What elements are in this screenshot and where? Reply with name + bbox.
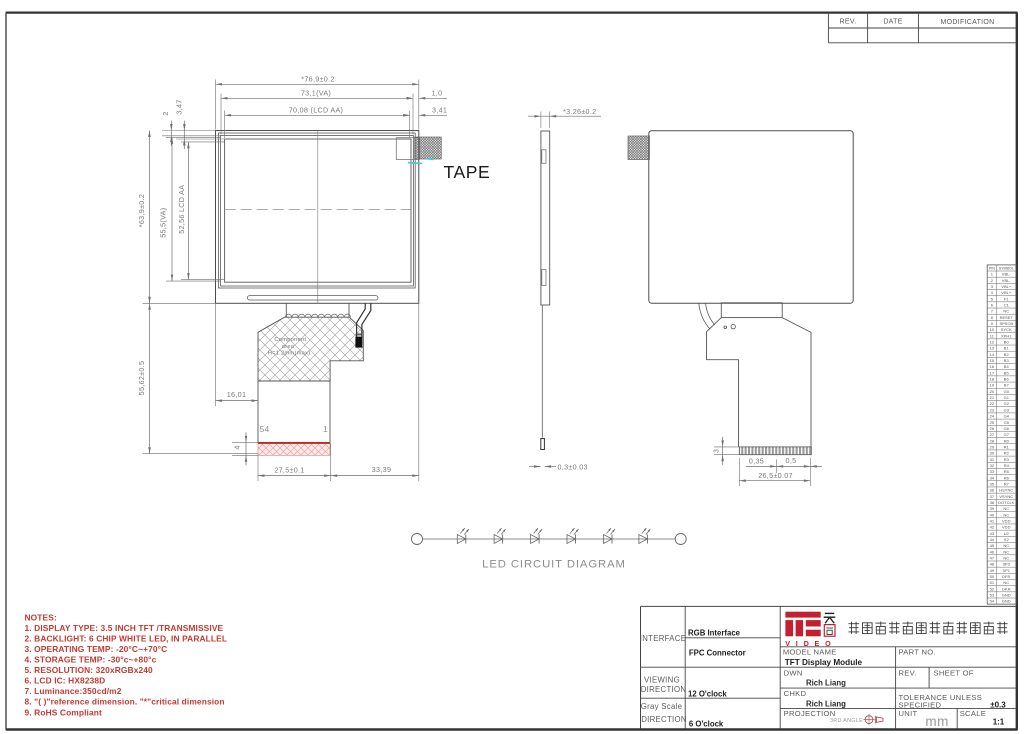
svg-text:11: 11	[990, 333, 995, 338]
svg-text:10: 10	[990, 327, 995, 332]
svg-text:NC: NC	[1003, 309, 1009, 314]
svg-text:DIRECTION: DIRECTION	[641, 685, 687, 694]
svg-text:TFT Display Module: TFT Display Module	[785, 658, 863, 667]
svg-text:NOTES:: NOTES:	[25, 612, 57, 622]
svg-text:SYMBOL: SYMBOL	[999, 266, 1014, 270]
svg-text:H=1.2mm(max): H=1.2mm(max)	[268, 350, 311, 356]
svg-text:B4: B4	[1004, 364, 1010, 369]
svg-text:38: 38	[990, 500, 995, 505]
svg-text:NC: NC	[1003, 555, 1009, 560]
svg-text:VBL-: VBL-	[1002, 272, 1012, 277]
svg-text:16,01: 16,01	[227, 390, 247, 399]
svg-text:23: 23	[990, 407, 995, 412]
svg-text:B5: B5	[1004, 370, 1010, 375]
svg-text:R7: R7	[1004, 481, 1010, 486]
svg-text:33: 33	[990, 469, 995, 474]
svg-text:16: 16	[990, 364, 995, 369]
svg-text:27: 27	[990, 432, 995, 437]
svg-text:B0: B0	[1004, 340, 1010, 345]
svg-text:0,5: 0,5	[786, 456, 797, 465]
svg-text:*76,9±0.2: *76,9±0.2	[301, 75, 334, 84]
svg-text:R5: R5	[1004, 469, 1010, 474]
svg-text:Gray Scale: Gray Scale	[641, 702, 683, 711]
svg-text:52: 52	[990, 586, 995, 591]
svg-text:SHEET OF: SHEET OF	[934, 669, 974, 678]
svg-text:G0: G0	[1004, 389, 1010, 394]
svg-text:3: 3	[711, 449, 720, 453]
svg-text:9. RoHS Compliant: 9. RoHS Compliant	[25, 707, 103, 717]
svg-text:6 O'clock: 6 O'clock	[689, 720, 724, 729]
svg-text:G4: G4	[1004, 414, 1010, 419]
svg-text:40: 40	[990, 512, 995, 517]
svg-text:2. BACKLIGHT: 6 CHIP WHITE LED: 2. BACKLIGHT: 6 CHIP WHITE LED, IN PARAL…	[25, 633, 228, 643]
svg-text:*63,9±0.2: *63,9±0.2	[137, 194, 146, 227]
svg-text:NC: NC	[1003, 512, 1009, 517]
svg-text:37: 37	[990, 494, 995, 499]
svg-text:1: 1	[991, 272, 994, 277]
svg-text:NC: NC	[1003, 506, 1009, 511]
svg-text:2: 2	[991, 278, 994, 283]
svg-text:7: 7	[991, 309, 994, 314]
svg-text:DOTCLK: DOTCLK	[998, 500, 1015, 505]
svg-text:Rich Liang: Rich Liang	[806, 679, 846, 688]
svg-text:21: 21	[990, 395, 995, 400]
svg-text:G7: G7	[1004, 432, 1010, 437]
svg-text:54: 54	[260, 424, 270, 434]
svg-text:*3.26±0.2: *3.26±0.2	[563, 107, 596, 116]
svg-text:52,56 LCD AA: 52,56 LCD AA	[177, 185, 186, 234]
svg-text:C1: C1	[1004, 303, 1010, 308]
svg-text:15: 15	[990, 358, 995, 363]
svg-text:12: 12	[990, 340, 995, 345]
svg-text:44: 44	[990, 537, 995, 542]
svg-text:6. LCD IC: HX8238D: 6. LCD IC: HX8238D	[25, 676, 106, 686]
svg-text:0,35: 0,35	[749, 457, 764, 466]
svg-text:43: 43	[990, 531, 995, 536]
svg-text:45: 45	[990, 543, 995, 548]
svg-text:B2: B2	[1004, 352, 1010, 357]
svg-text:73,1(VA): 73,1(VA)	[301, 89, 331, 98]
svg-text:REV.: REV.	[840, 19, 857, 26]
svg-text:9: 9	[991, 321, 994, 326]
svg-text:48: 48	[990, 562, 995, 567]
svg-text:area: area	[282, 344, 295, 350]
svg-text:MODIFICATION: MODIFICATION	[940, 19, 994, 26]
svg-text:U2: U2	[1004, 531, 1010, 536]
svg-text:VBL+: VBL+	[1001, 284, 1012, 289]
svg-text:CHKD: CHKD	[784, 689, 807, 698]
svg-text:DATE: DATE	[883, 19, 902, 26]
svg-text:33,39: 33,39	[372, 465, 392, 474]
svg-text:XPH1: XPH1	[1001, 333, 1012, 338]
svg-text:MODEL NAME: MODEL NAME	[783, 648, 837, 657]
svg-text:SPECIFIED: SPECIFIED	[899, 701, 942, 710]
svg-text:FPC Connector: FPC Connector	[689, 648, 746, 657]
svg-text:G3: G3	[1004, 407, 1010, 412]
svg-text:RGB Interface: RGB Interface	[688, 628, 741, 637]
svg-text:LED CIRCUIT DIAGRAM: LED CIRCUIT DIAGRAM	[482, 559, 626, 571]
svg-text:14: 14	[990, 352, 995, 357]
svg-text:VDD: VDD	[1002, 525, 1011, 530]
svg-text:3. OPERATING TEMP: -20°C~+70°C: 3. OPERATING TEMP: -20°C~+70°C	[25, 644, 168, 654]
svg-text:18: 18	[990, 377, 995, 382]
svg-text:UNIT: UNIT	[899, 709, 918, 718]
svg-text:V I D E O: V I D E O	[785, 639, 832, 648]
svg-text:B7: B7	[1004, 383, 1010, 388]
svg-text:G1: G1	[1004, 395, 1010, 400]
svg-text:1: 1	[323, 424, 328, 434]
svg-text:R6: R6	[1004, 475, 1010, 480]
svg-text:50: 50	[990, 574, 995, 579]
svg-text:28: 28	[990, 438, 995, 443]
svg-text:HSYNC: HSYNC	[999, 488, 1013, 493]
svg-text:DIRECTION: DIRECTION	[641, 715, 687, 724]
svg-text:32: 32	[990, 463, 995, 468]
svg-text:35: 35	[990, 481, 995, 486]
svg-text:51: 51	[990, 580, 995, 585]
svg-text:8: 8	[991, 315, 994, 320]
svg-text:VIEWING: VIEWING	[644, 675, 680, 684]
svg-text:INTERFACE: INTERFACE	[640, 634, 686, 643]
svg-text:17: 17	[990, 370, 995, 375]
svg-text:4: 4	[991, 290, 994, 295]
svg-text:R4: R4	[1004, 463, 1010, 468]
svg-text:DFR: DFR	[1002, 574, 1010, 579]
svg-text:REV.: REV.	[899, 669, 917, 678]
svg-text:SP1: SP1	[1002, 568, 1010, 573]
svg-text:55,62±0.5: 55,62±0.5	[137, 361, 146, 396]
svg-text:31: 31	[990, 457, 995, 462]
svg-text:13: 13	[990, 346, 995, 351]
svg-text:22: 22	[990, 401, 995, 406]
svg-text:3,47: 3,47	[175, 99, 184, 114]
svg-text:SYCK: SYCK	[1001, 327, 1012, 332]
svg-text:DWN: DWN	[784, 669, 803, 678]
svg-text:B3: B3	[1004, 358, 1010, 363]
svg-text:8. "( )"reference dimension. ": 8. "( )"reference dimension. "*"critical…	[25, 697, 225, 707]
svg-text:20: 20	[990, 389, 995, 394]
svg-text:PROJECTION: PROJECTION	[784, 709, 836, 718]
svg-text:PIN: PIN	[989, 266, 995, 270]
svg-text:SPSCB: SPSCB	[999, 321, 1013, 326]
svg-text:Rich Liang: Rich Liang	[806, 699, 846, 708]
svg-text:24: 24	[990, 414, 995, 419]
svg-text:25: 25	[990, 420, 995, 425]
svg-text:VDD: VDD	[1002, 518, 1011, 523]
svg-text:5: 5	[991, 296, 994, 301]
svg-text:1:1: 1:1	[993, 718, 1005, 727]
svg-text:39: 39	[990, 506, 995, 511]
svg-text:R0: R0	[1004, 438, 1010, 443]
svg-text:2: 2	[161, 111, 170, 115]
svg-text:49: 49	[990, 568, 995, 573]
svg-text:R3: R3	[1004, 457, 1010, 462]
svg-text:54: 54	[990, 599, 995, 604]
svg-text:41: 41	[990, 518, 995, 523]
svg-text:GND: GND	[1002, 593, 1011, 598]
svg-text:Component: Component	[274, 337, 306, 343]
svg-text:36: 36	[990, 488, 995, 493]
svg-text:4. STORAGE TEMP: -30°c~+80°c: 4. STORAGE TEMP: -30°c~+80°c	[25, 655, 157, 665]
svg-text:55,5(VA): 55,5(VA)	[159, 208, 168, 238]
svg-text:VSYNC: VSYNC	[999, 494, 1013, 499]
svg-text:GND: GND	[1002, 599, 1011, 604]
svg-text:G6: G6	[1004, 426, 1010, 431]
svg-text:SCALE: SCALE	[960, 709, 986, 718]
svg-text:4: 4	[232, 445, 241, 449]
svg-text:B6: B6	[1004, 377, 1010, 382]
svg-text:mm: mm	[925, 714, 949, 729]
svg-text:3: 3	[991, 284, 994, 289]
svg-text:NC: NC	[1003, 580, 1009, 585]
svg-text:19: 19	[990, 383, 995, 388]
svg-text:34: 34	[990, 475, 995, 480]
svg-text:R1: R1	[1004, 444, 1010, 449]
svg-text:53: 53	[990, 593, 995, 598]
svg-text:46: 46	[990, 549, 995, 554]
svg-text:NC: NC	[1003, 549, 1009, 554]
svg-text:47: 47	[990, 555, 995, 560]
svg-text:TAPE: TAPE	[444, 162, 491, 182]
svg-text:1. DISPLAY TYPE: 3.5 INCH TFT: 1. DISPLAY TYPE: 3.5 INCH TFT /TRANSMISS…	[25, 623, 224, 633]
svg-text:0,3±0.03: 0,3±0.03	[558, 462, 588, 471]
svg-text:NC: NC	[1003, 543, 1009, 548]
svg-text:VBL-: VBL-	[1002, 278, 1012, 283]
svg-text:RESET: RESET	[1000, 315, 1014, 320]
svg-text:42: 42	[990, 525, 995, 530]
svg-text:G2: G2	[1004, 401, 1010, 406]
svg-text:70,08 (LCD AA): 70,08 (LCD AA)	[289, 105, 344, 114]
svg-text:B1: B1	[1004, 346, 1010, 351]
svg-text:6: 6	[991, 303, 994, 308]
svg-text:26: 26	[990, 426, 995, 431]
svg-text:3,41: 3,41	[432, 105, 447, 114]
svg-text:7. Luminance:350cd/m2: 7. Luminance:350cd/m2	[25, 686, 122, 696]
svg-text:±0.3: ±0.3	[990, 701, 1006, 710]
svg-text:VBL+: VBL+	[1001, 290, 1012, 295]
svg-text:3P3: 3P3	[1003, 562, 1011, 567]
svg-text:DKR: DKR	[1002, 586, 1011, 591]
svg-text:R2: R2	[1004, 451, 1010, 456]
svg-text:29: 29	[990, 444, 995, 449]
svg-text:G5: G5	[1004, 420, 1010, 425]
svg-text:3RD ANGLE: 3RD ANGLE	[830, 718, 863, 724]
svg-text:12 O'clock: 12 O'clock	[688, 690, 727, 699]
svg-text:1,0: 1,0	[432, 89, 443, 98]
svg-text:26,5±0.07: 26,5±0.07	[758, 471, 793, 480]
svg-text:27,5±0.1: 27,5±0.1	[274, 465, 304, 474]
svg-text:5. RESOLUTION: 320xRGBx240: 5. RESOLUTION: 320xRGBx240	[25, 665, 154, 675]
svg-text:30: 30	[990, 451, 995, 456]
svg-text:PART NO.: PART NO.	[899, 648, 936, 657]
svg-text:F1: F1	[1004, 296, 1009, 301]
svg-text:X2: X2	[1004, 537, 1010, 542]
